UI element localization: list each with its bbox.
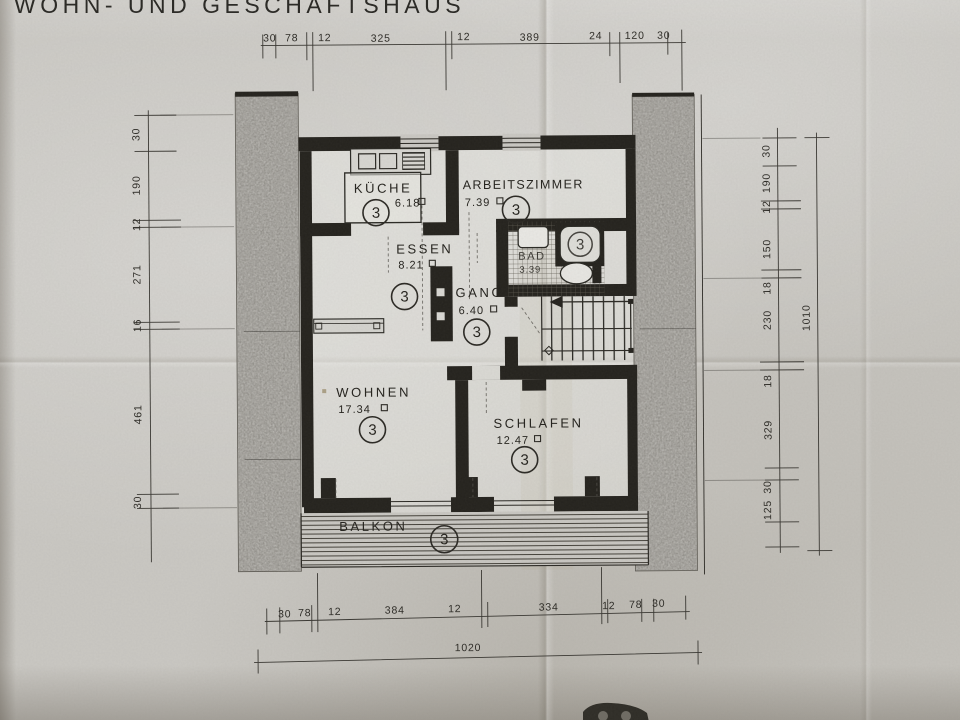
scanned-floor-plan-sheet: WOHN- UND GESCHÄFTSHAUS xyxy=(0,0,960,720)
scan-grain-overlay xyxy=(0,0,960,720)
floor-plan-drawing: WOHN- UND GESCHÄFTSHAUS xyxy=(0,0,960,720)
